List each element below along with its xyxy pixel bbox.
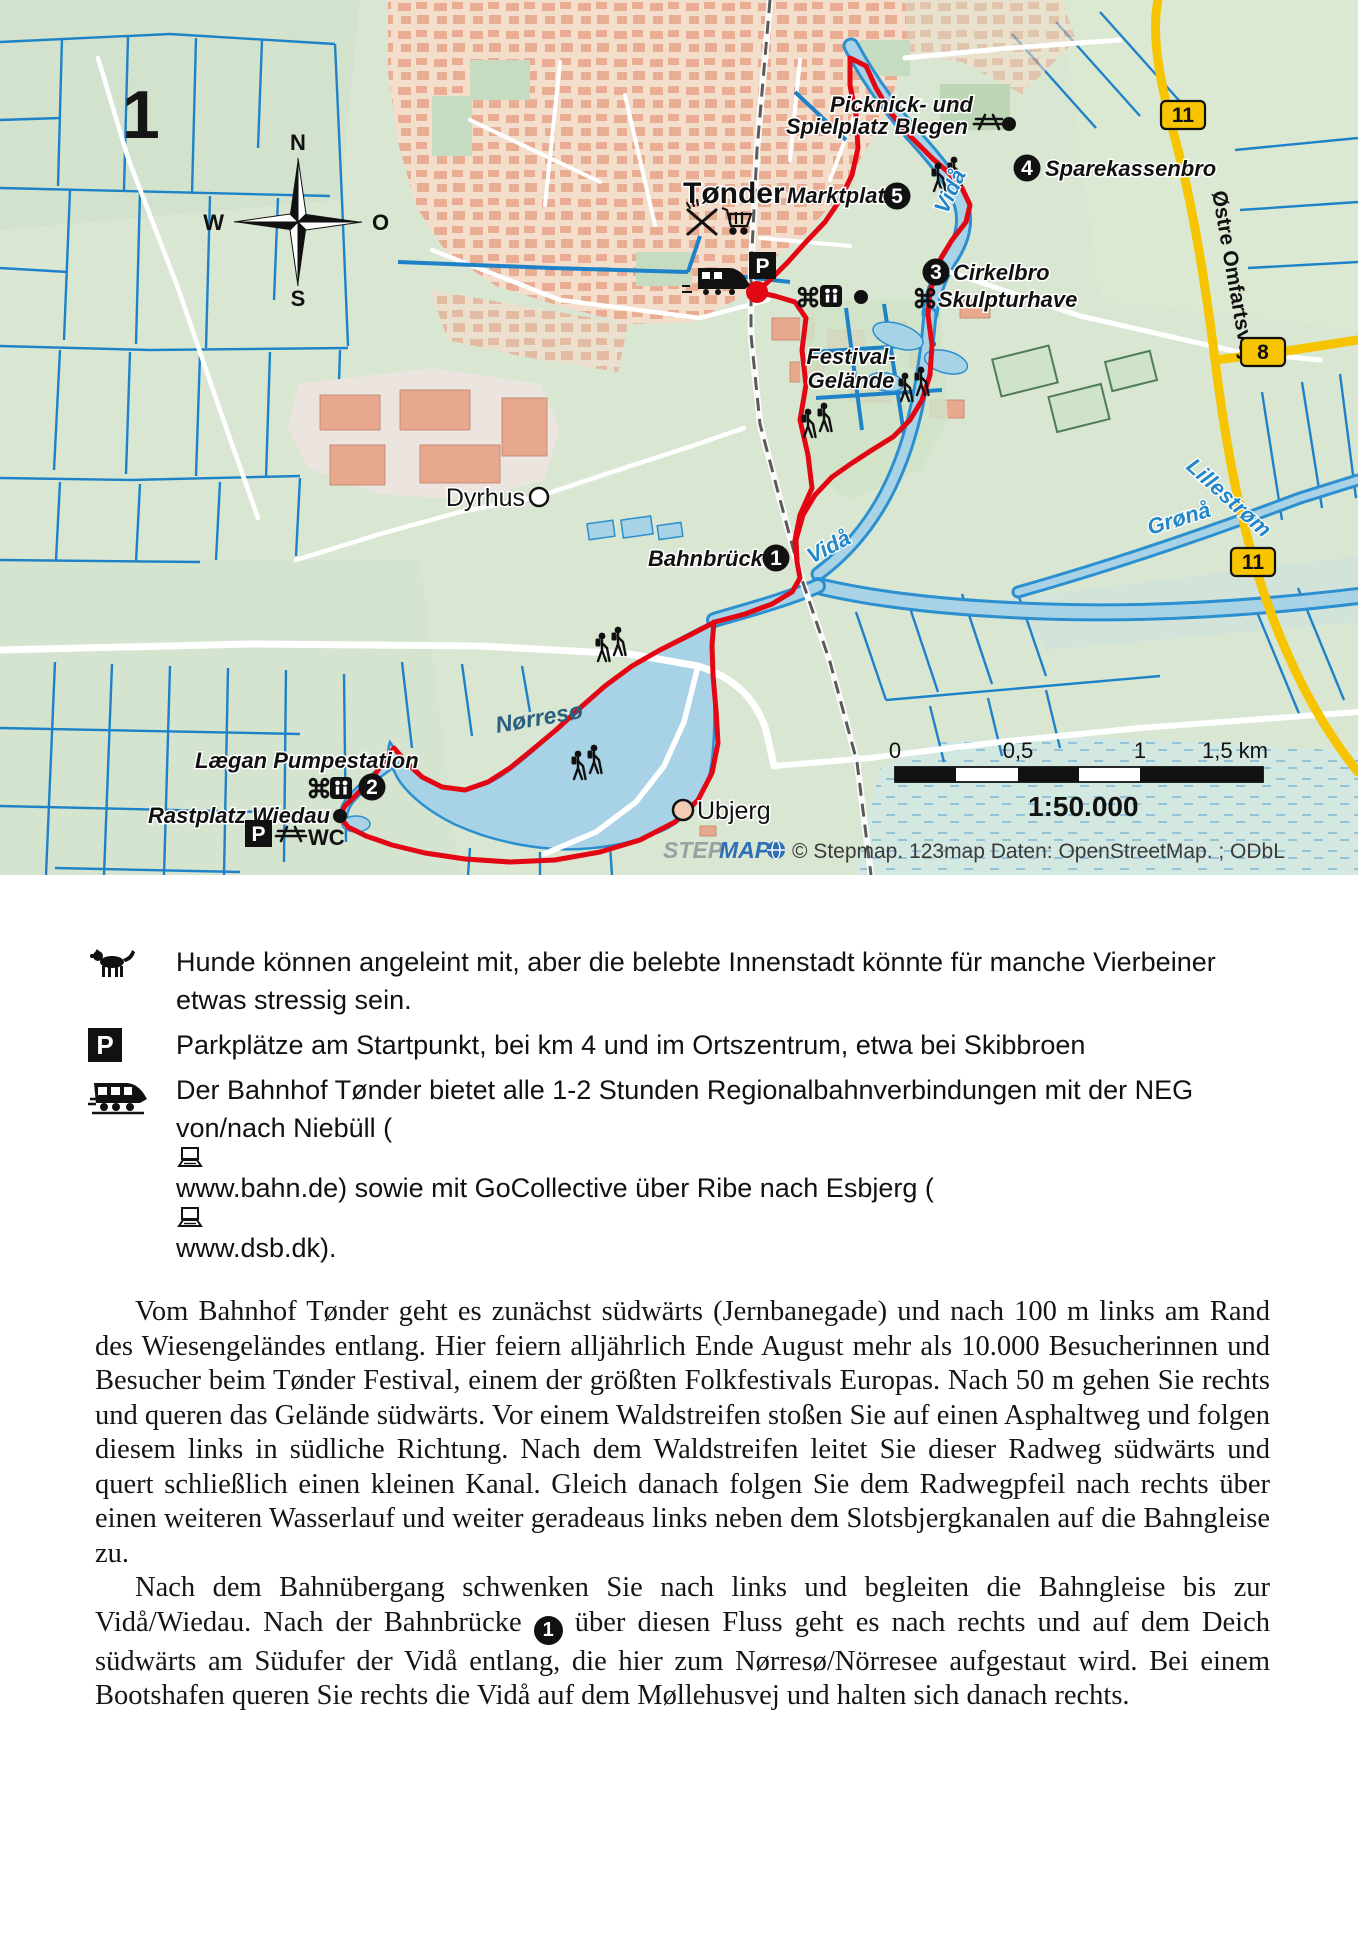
legend-train-text: Der Bahnhof Tønder bietet alle 1-2 Stund… [176, 1071, 1273, 1267]
road-badge-11-top: 11 [1161, 101, 1205, 129]
train-icon [88, 1071, 176, 1117]
poi-dot-station [854, 290, 868, 304]
road-badge-11-bottom: 11 [1231, 548, 1275, 576]
legend-row-parking: P Parkplätze am Startpunkt, bei km 4 und… [0, 1026, 1358, 1064]
legend-train-text-1: Der Bahnhof Tønder bietet alle 1-2 Stund… [176, 1075, 1193, 1143]
compass-s-label: S [291, 286, 306, 311]
tour-number: 1 [122, 77, 160, 153]
poi-label-picknick-line2: Spielplatz Blegen [786, 114, 968, 139]
scale-tick-1: 1 [1134, 738, 1146, 763]
poi-dot-picknick [1002, 117, 1016, 131]
legend-train-text-2: www.bahn.de) sowie mit GoCollective über… [176, 1173, 934, 1203]
place-dot-dyrhus [530, 488, 548, 506]
poi-label-sparekassenbro: Sparekassenbro [1045, 156, 1216, 181]
route-marker-1: 1 [763, 545, 790, 572]
legend-train-text-3: www.dsb.dk). [176, 1233, 337, 1263]
parking-badge-station: P [749, 252, 776, 279]
svg-text:11: 11 [1172, 104, 1195, 127]
scale-tick-05: 0,5 [1003, 738, 1034, 763]
route-description: Vom Bahnhof Tønder geht es zunächst südw… [95, 1295, 1270, 1714]
compass-w-label: W [203, 210, 224, 235]
laptop-icon-1 [176, 1147, 204, 1169]
globe-icon [767, 841, 785, 859]
route-marker-4: 4 [1014, 155, 1041, 182]
svg-text:3: 3 [930, 261, 942, 284]
sight-icon-station: ⌘ [795, 283, 821, 313]
poi-label-marktplatz: Marktplatz [787, 183, 896, 208]
svg-text:11: 11 [1242, 551, 1265, 574]
route-description-para1: Vom Bahnhof Tønder geht es zunächst südw… [95, 1295, 1270, 1571]
sight-icon-laegan: ⌘ [306, 774, 332, 804]
museum-icon-laegan [330, 777, 352, 799]
sight-icon-skulpturhave: ⌘ [912, 284, 938, 314]
svg-text:P: P [755, 255, 769, 278]
route-marker-3: 3 [923, 259, 950, 286]
compass-n-label: N [290, 130, 306, 155]
svg-text:1: 1 [770, 547, 782, 570]
compass-o-label: O [372, 210, 389, 235]
route-marker-2: 2 [359, 774, 386, 801]
parking-icon-letter: P [88, 1028, 122, 1062]
poi-label-rastplatz: Rastplatz Wiedau [148, 803, 331, 828]
road-badge-8: 8 [1241, 338, 1285, 366]
route-description-para2: Nach dem Bahnübergang schwenken Sie nach… [95, 1571, 1270, 1714]
poi-label-laegan: Lægan Pumpestation [195, 748, 419, 773]
legend-dog-text: Hunde können angeleint mit, aber die bel… [176, 943, 1273, 1019]
map-attribution: STEP MAP © Stepmap. 123map Daten: OpenSt… [663, 837, 1285, 863]
legend: Hunde können angeleint mit, aber die bel… [0, 943, 1358, 1274]
dog-icon [88, 943, 176, 983]
poi-label-festival-line1: Festival- [806, 344, 895, 369]
poi-label-skulpturhave: Skulpturhave [938, 287, 1077, 312]
stepmap-logo-map: MAP [719, 837, 771, 863]
museum-icon-station [820, 285, 842, 307]
place-label-ubjerg: Ubjerg [697, 797, 771, 825]
stepmap-logo-step: STEP [663, 837, 724, 863]
tour-map: 1 N W O S Tønder Marktplatz [0, 0, 1358, 875]
route-marker-5: 5 [884, 183, 911, 210]
svg-text:4: 4 [1021, 157, 1033, 180]
legend-parking-text: Parkplätze am Startpunkt, bei km 4 und i… [176, 1026, 1273, 1064]
wc-label: WC [308, 825, 345, 850]
svg-text:P: P [251, 823, 265, 846]
attribution-text: © Stepmap. 123map Daten: OpenStreetMap. … [792, 840, 1285, 863]
poi-label-bahnbruecke: Bahnbrücke [648, 546, 775, 571]
parking-badge-rastplatz: P [245, 820, 272, 847]
guidebook-page: 1 N W O S Tønder Marktplatz [0, 0, 1358, 1948]
svg-text:5: 5 [891, 185, 903, 208]
parking-icon: P [88, 1026, 176, 1062]
inline-route-marker-1-number: 1 [543, 1619, 554, 1641]
svg-text:2: 2 [366, 776, 378, 799]
svg-text:8: 8 [1257, 341, 1269, 364]
legend-row-dog: Hunde können angeleint mit, aber die bel… [0, 943, 1358, 1019]
tour-map-svg: 1 N W O S Tønder Marktplatz [0, 0, 1358, 875]
inline-route-marker-1: 1 [534, 1616, 563, 1645]
place-dot-ubjerg [673, 800, 693, 820]
poi-dot-rastplatz [333, 809, 347, 823]
poi-label-cirkelbro: Cirkelbro [953, 260, 1050, 285]
legend-row-train: Der Bahnhof Tønder bietet alle 1-2 Stund… [0, 1071, 1358, 1267]
laptop-icon-2 [176, 1207, 204, 1229]
poi-label-festival-line2: Gelände [808, 368, 895, 393]
scale-tick-15km: 1,5 km [1202, 738, 1268, 763]
scale-ratio: 1:50.000 [1028, 791, 1139, 822]
scale-tick-0: 0 [889, 738, 901, 763]
place-label-dyrhus: Dyrhus [446, 484, 525, 512]
